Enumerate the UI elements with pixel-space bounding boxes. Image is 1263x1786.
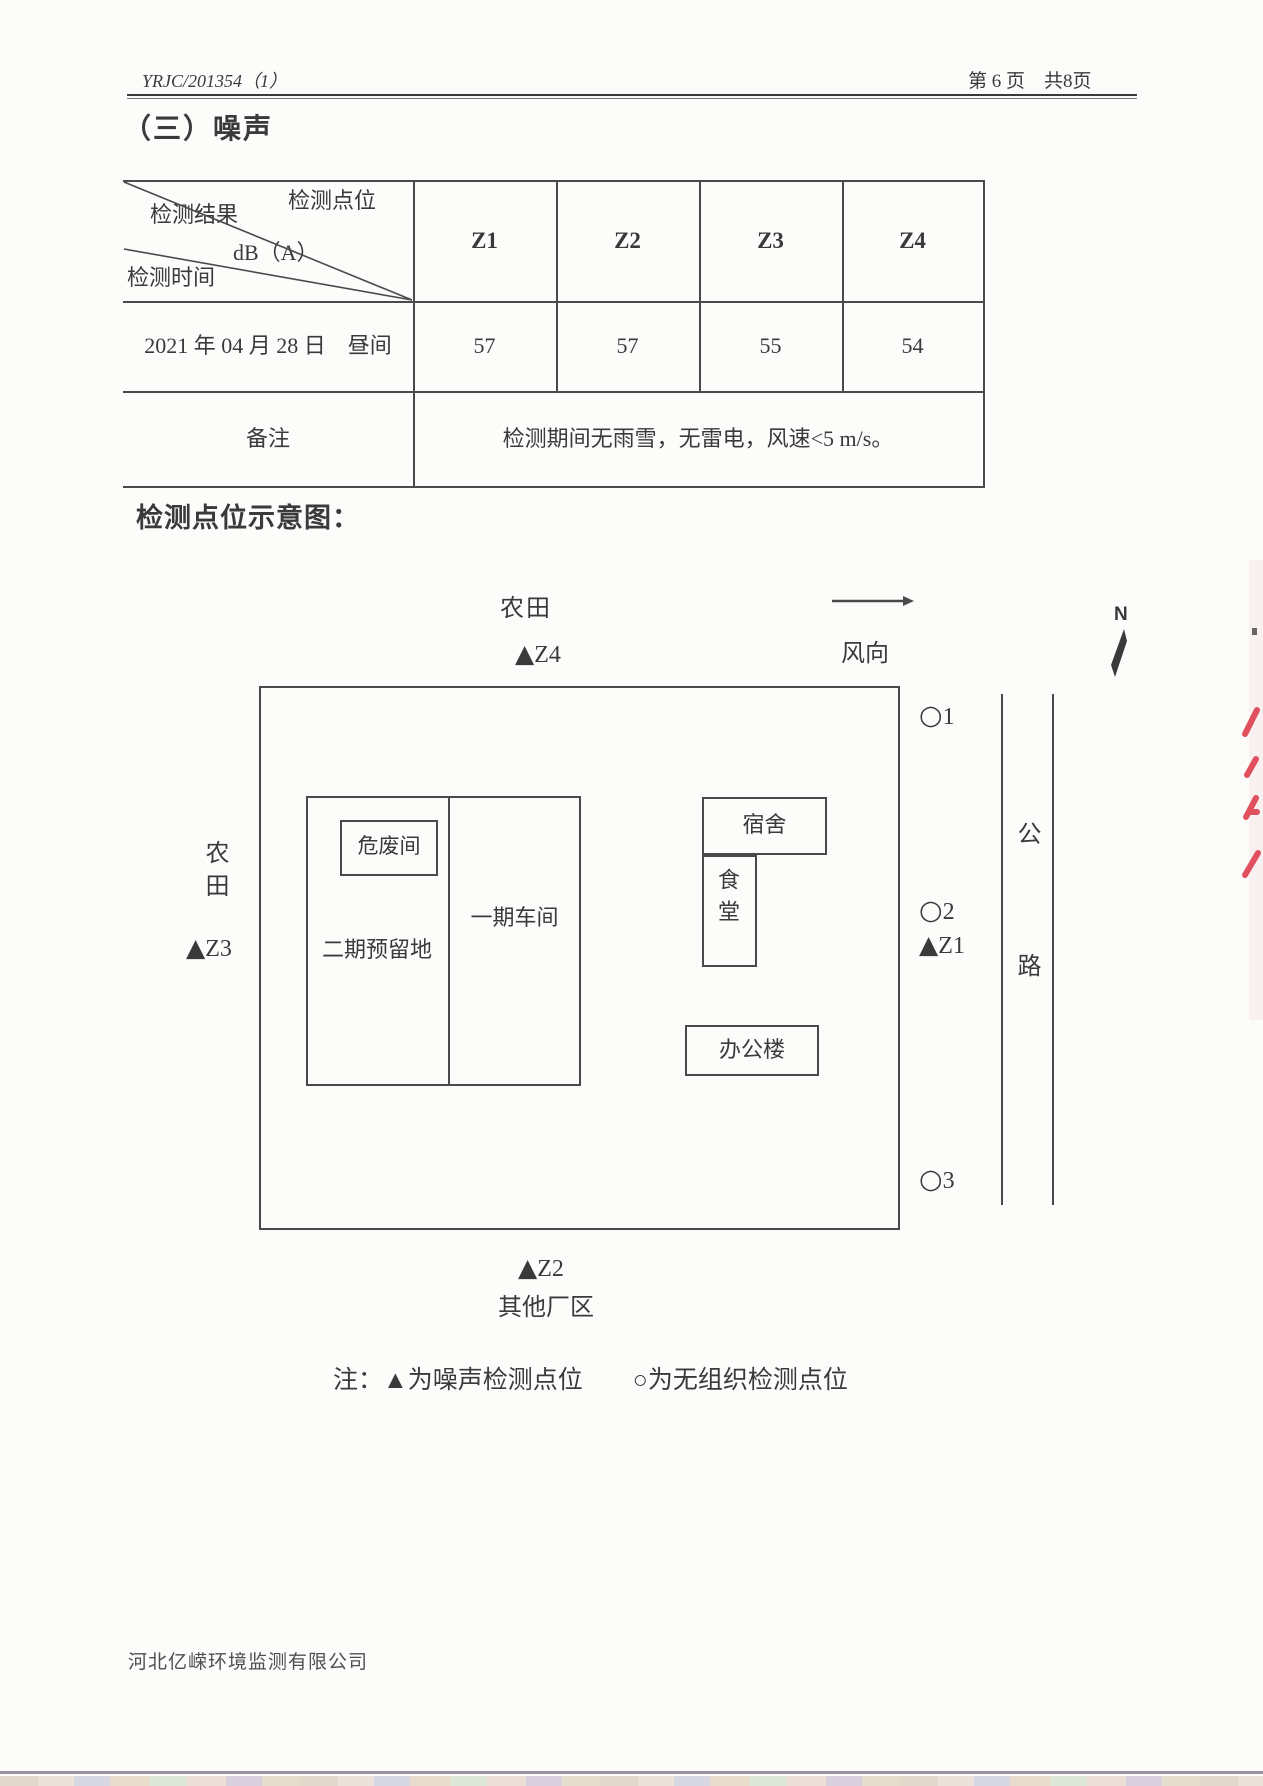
scan-speck-artifact xyxy=(1252,628,1257,635)
diagram-overlay xyxy=(0,0,1263,1786)
scan-red-marks-artifact xyxy=(1245,710,1258,875)
scanned-report-page: YRJC/201354（1） 第 6 页 共8页 （三）噪声 检测点位 检测结果… xyxy=(0,0,1263,1786)
wind-direction-arrow-icon xyxy=(832,596,914,606)
compass-needle-icon xyxy=(1111,629,1127,677)
table-diagonal-lines xyxy=(124,182,412,300)
